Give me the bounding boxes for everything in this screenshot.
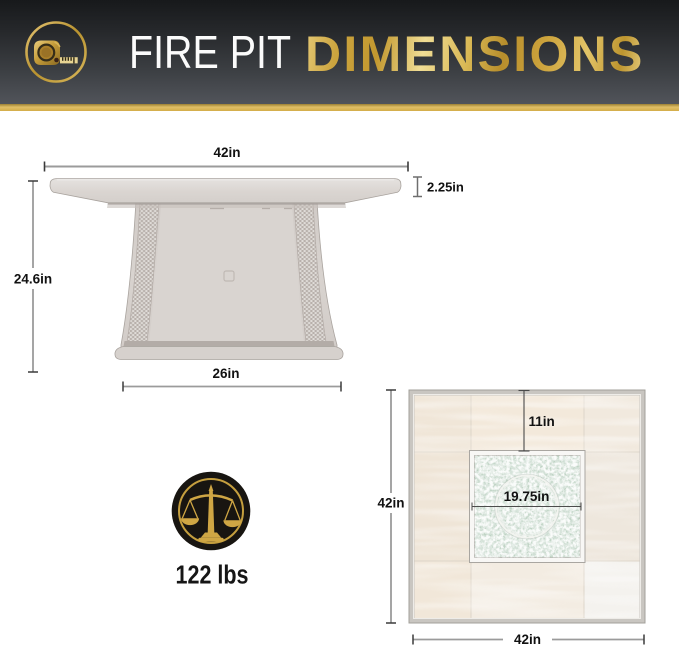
svg-text:2.25in: 2.25in	[427, 180, 464, 195]
svg-text:42in: 42in	[213, 145, 240, 160]
svg-text:42in: 42in	[377, 496, 404, 511]
svg-text:24.6in: 24.6in	[14, 272, 52, 287]
svg-text:26in: 26in	[212, 366, 239, 381]
svg-text:122 lbs: 122 lbs	[176, 562, 249, 590]
svg-text:42in: 42in	[514, 632, 541, 647]
svg-text:11in: 11in	[529, 414, 555, 429]
svg-text:19.75in: 19.75in	[504, 489, 550, 504]
